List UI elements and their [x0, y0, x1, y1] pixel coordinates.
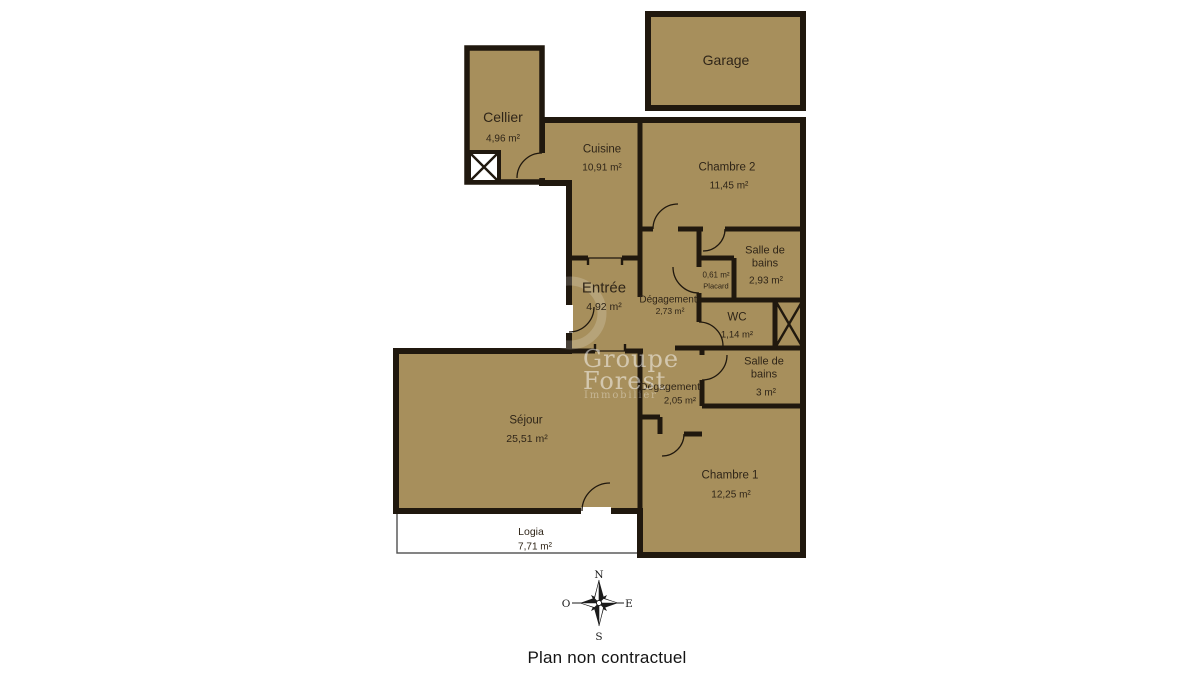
watermark: Groupe Forest	[583, 348, 679, 392]
room-label-placard: Placard	[703, 283, 728, 292]
room-area-cuisine: 10,91 m²	[582, 162, 621, 174]
room-area-chambre1: 12,25 m²	[711, 489, 750, 501]
room-label-chambre1: Chambre 1	[702, 469, 759, 482]
watermark-line2: Forest	[583, 370, 679, 392]
room-label-degagement1: Dégagement	[639, 294, 696, 306]
compass-rose-icon: N S E O	[562, 569, 633, 643]
room-area-placard: 0,61 m²	[702, 270, 729, 279]
floor-plan-svg: N S E O	[0, 0, 1200, 675]
room-label-sdb2: Salle de bains	[734, 355, 794, 380]
room-label-wc: WC	[727, 311, 746, 324]
room-label-logia: Logia	[518, 526, 544, 538]
room-area-chambre2: 11,45 m²	[710, 180, 749, 192]
room-label-entree: Entrée	[582, 279, 626, 296]
room-label-cellier: Cellier	[483, 109, 523, 125]
compass-west-label: O	[562, 598, 571, 610]
room-label-garage: Garage	[703, 52, 750, 68]
floor-plan-page: N S E O Garage Cellier 4,96 m² Cuisine 1…	[0, 0, 1200, 675]
room-area-degagement2: 2,05 m²	[664, 397, 696, 408]
room-area-sdb1: 2,93 m²	[749, 275, 783, 287]
duct-hatch-cellier	[469, 152, 499, 182]
room-area-entree: 4,92 m²	[586, 301, 622, 313]
room-area-sejour: 25,51 m²	[506, 433, 547, 445]
room-area-degagement1: 2,73 m²	[656, 307, 685, 317]
room-label-sejour: Séjour	[509, 414, 542, 427]
compass-east-label: E	[625, 598, 633, 610]
room-label-sdb1: Salle de bains	[735, 244, 795, 269]
room-area-wc: 1,14 m²	[721, 331, 753, 342]
room-area-cellier: 4,96 m²	[486, 133, 520, 145]
disclaimer-text: Plan non contractuel	[528, 648, 687, 668]
watermark-subtitle: Immobilier	[584, 390, 658, 401]
room-area-sdb2: 3 m²	[756, 387, 776, 399]
room-label-chambre2: Chambre 2	[699, 161, 756, 174]
compass-south-label: S	[595, 631, 602, 643]
room-label-cuisine: Cuisine	[583, 143, 621, 156]
room-area-logia: 7,71 m²	[518, 541, 552, 553]
compass-north-label: N	[594, 569, 603, 581]
